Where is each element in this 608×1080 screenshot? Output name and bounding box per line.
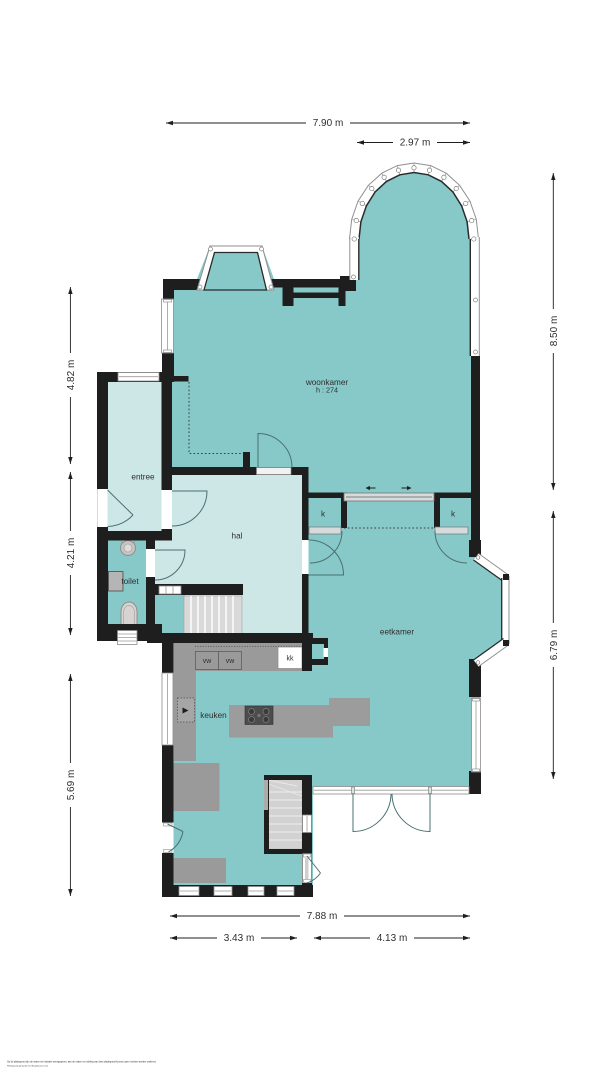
svg-text:4.13 m: 4.13 m bbox=[377, 933, 408, 944]
svg-text:entree: entree bbox=[131, 473, 155, 482]
svg-text:4.21 m: 4.21 m bbox=[66, 538, 77, 569]
svg-text:7.88 m: 7.88 m bbox=[307, 911, 338, 922]
svg-text:2.97 m: 2.97 m bbox=[400, 138, 431, 149]
svg-text:toilet: toilet bbox=[121, 577, 139, 586]
svg-text:7.90 m: 7.90 m bbox=[313, 118, 344, 129]
svg-text:4.82 m: 4.82 m bbox=[66, 360, 77, 391]
svg-text:keuken: keuken bbox=[200, 711, 227, 720]
svg-text:vw: vw bbox=[226, 658, 236, 665]
svg-text:vw: vw bbox=[203, 658, 213, 665]
svg-text:kk: kk bbox=[287, 656, 295, 663]
svg-text:Plattegrond gemaakt met floorp: Plattegrond gemaakt met floorplanner.com bbox=[7, 1065, 48, 1068]
svg-text:6.79 m: 6.79 m bbox=[549, 630, 560, 661]
svg-text:8.50 m: 8.50 m bbox=[549, 316, 560, 347]
svg-text:5.69 m: 5.69 m bbox=[66, 770, 77, 801]
svg-text:h : 274: h : 274 bbox=[316, 386, 338, 395]
svg-text:eetkamer: eetkamer bbox=[380, 628, 414, 637]
svg-text:hal: hal bbox=[232, 532, 243, 541]
svg-text:3.43 m: 3.43 m bbox=[224, 933, 255, 944]
svg-text:Op de plattegrond zijn de mate: Op de plattegrond zijn de maten ter indi… bbox=[7, 1061, 157, 1064]
